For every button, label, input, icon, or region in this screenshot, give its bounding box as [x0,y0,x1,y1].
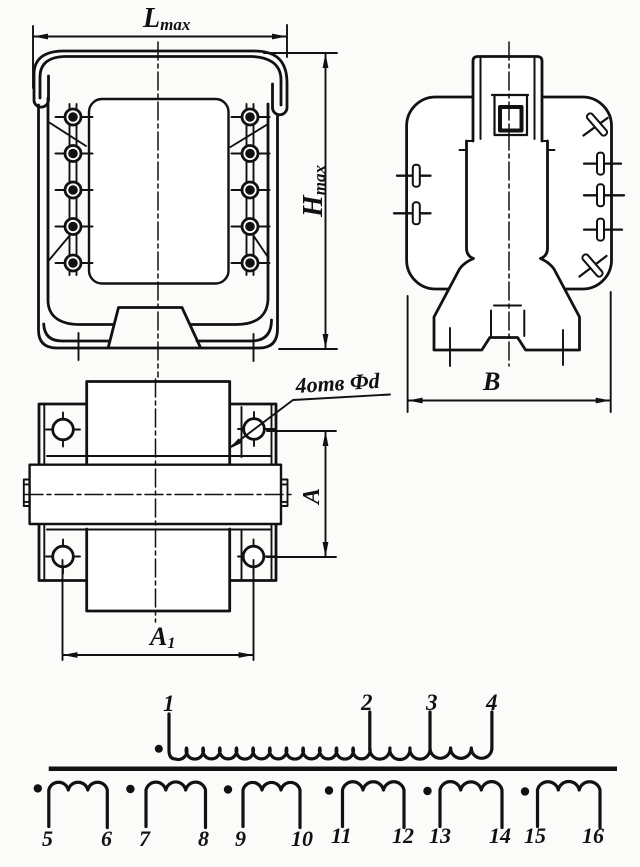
svg-text:9: 9 [235,826,246,851]
svg-text:1: 1 [163,691,175,716]
svg-text:12: 12 [392,823,414,848]
svg-text:7: 7 [139,826,151,851]
svg-text:4: 4 [485,690,498,715]
svg-text:B: B [482,367,500,396]
svg-text:10: 10 [291,826,313,851]
svg-text:2: 2 [360,690,373,715]
svg-text:Hmax: Hmax [298,164,329,218]
svg-text:5: 5 [42,826,53,851]
svg-text:16: 16 [582,823,604,848]
svg-text:11: 11 [331,823,352,848]
svg-text:A: A [299,488,325,506]
svg-text:4отв Фd: 4отв Фd [294,368,382,398]
svg-text:8: 8 [198,826,209,851]
svg-text:6: 6 [101,826,112,851]
svg-text:15: 15 [524,823,546,848]
svg-text:13: 13 [429,823,451,848]
svg-text:3: 3 [425,690,438,715]
svg-text:14: 14 [489,823,511,848]
svg-text:A1: A1 [148,622,175,652]
svg-text:Lmax: Lmax [142,3,191,34]
